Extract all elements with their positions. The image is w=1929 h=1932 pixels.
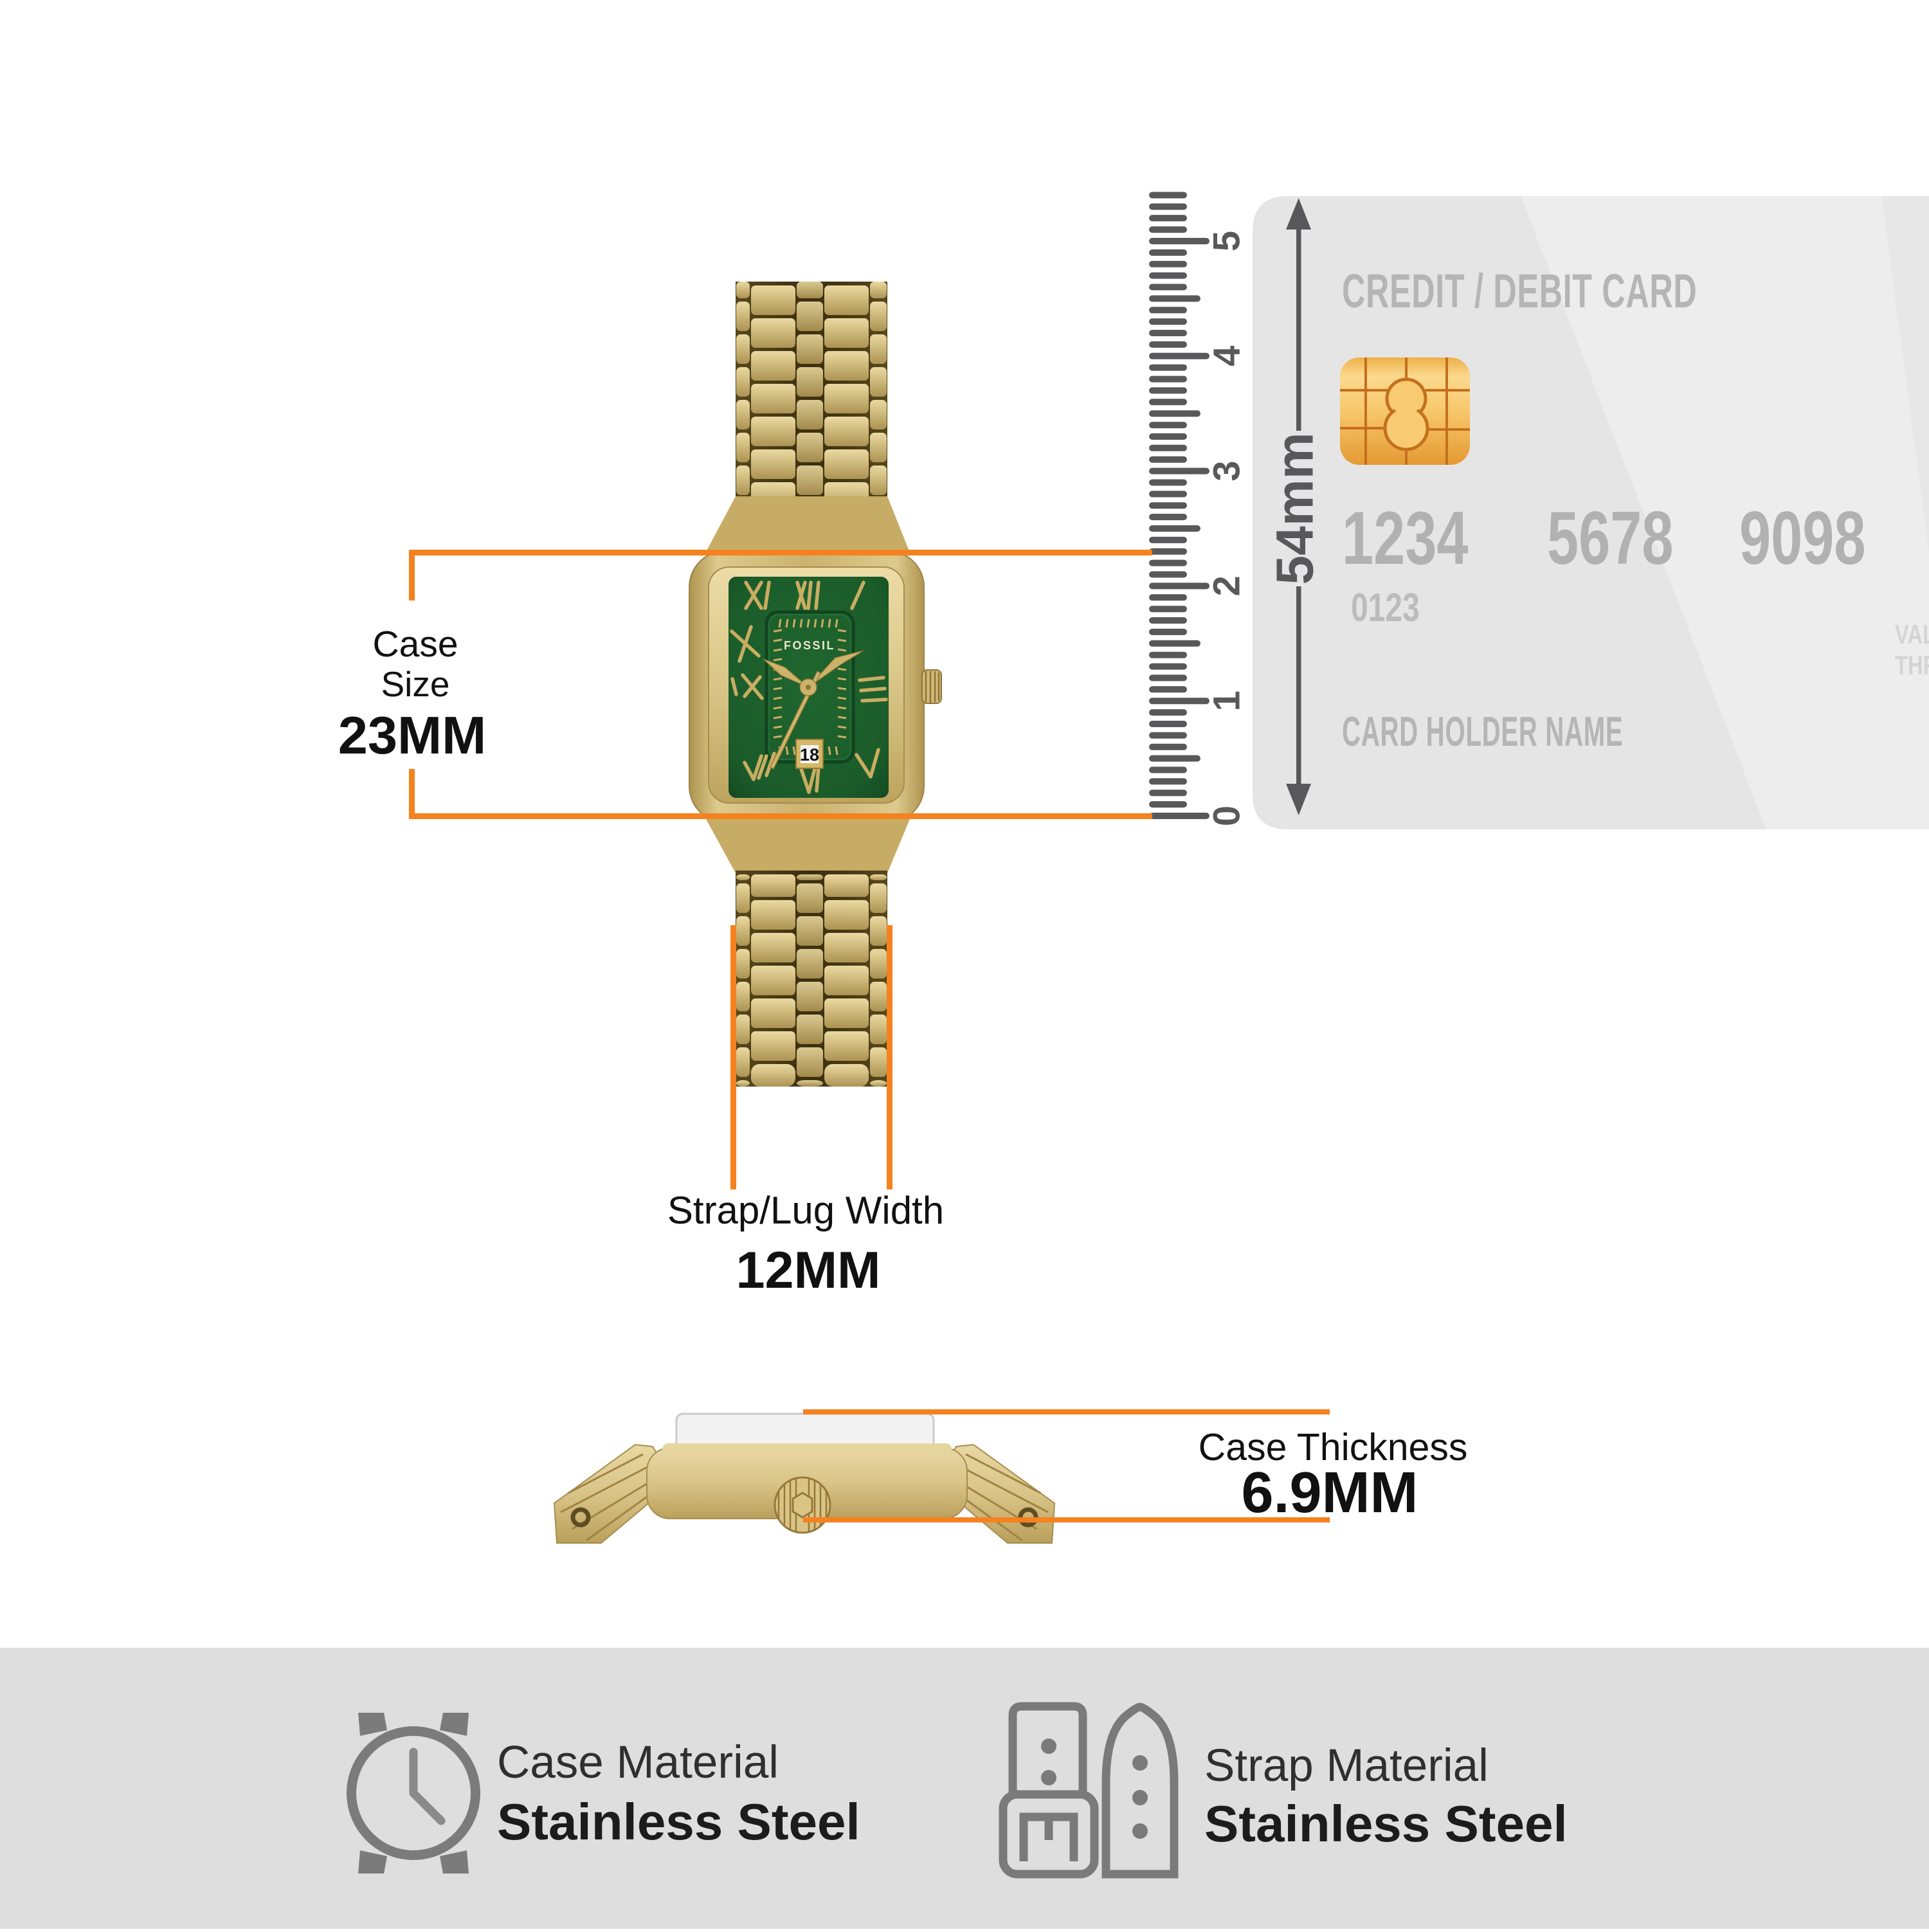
svg-text:54mm: 54mm <box>1266 432 1325 584</box>
svg-text:CARD HOLDER NAME: CARD HOLDER NAME <box>1342 709 1623 755</box>
svg-text:4: 4 <box>1206 346 1248 366</box>
svg-text:VALID: VALID <box>1895 619 1929 649</box>
svg-text:Strap Material: Strap Material <box>1204 1740 1489 1791</box>
svg-text:9098: 9098 <box>1739 496 1866 580</box>
svg-text:CREDIT / DEBIT CARD: CREDIT / DEBIT CARD <box>1342 266 1697 318</box>
svg-text:5678: 5678 <box>1547 496 1674 580</box>
svg-text:Case Material: Case Material <box>497 1737 779 1788</box>
svg-text:3: 3 <box>1206 460 1248 481</box>
svg-text:5: 5 <box>1206 231 1248 251</box>
svg-text:Stainless Steel: Stainless Steel <box>1204 1795 1568 1852</box>
svg-text:THRU: THRU <box>1895 650 1929 680</box>
svg-text:Strap/Lug Width: Strap/Lug Width <box>667 1189 944 1232</box>
svg-text:23MM: 23MM <box>338 705 487 765</box>
svg-text:18: 18 <box>800 745 819 764</box>
svg-text:1: 1 <box>1206 691 1248 711</box>
svg-text:0123: 0123 <box>1351 585 1420 629</box>
svg-text:2: 2 <box>1206 575 1248 596</box>
svg-text:FOSSIL: FOSSIL <box>784 639 835 652</box>
svg-text:12MM: 12MM <box>736 1241 880 1299</box>
svg-text:1234: 1234 <box>1342 496 1469 580</box>
svg-text:6.9MM: 6.9MM <box>1241 1461 1418 1525</box>
svg-text:Case: Case <box>372 624 458 665</box>
svg-text:0: 0 <box>1206 806 1248 826</box>
svg-text:Size: Size <box>381 664 450 704</box>
svg-text:Stainless Steel: Stainless Steel <box>497 1793 860 1850</box>
